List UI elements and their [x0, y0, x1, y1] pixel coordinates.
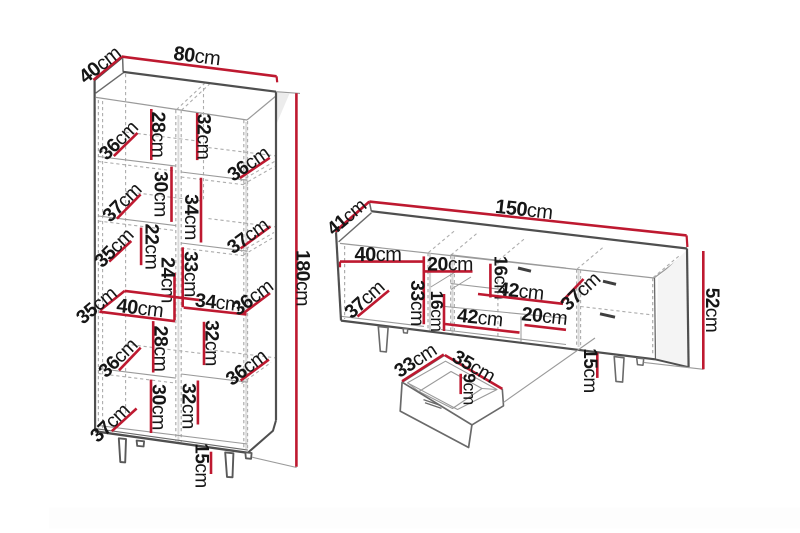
- svg-text:33cm: 33cm: [406, 280, 428, 326]
- svg-text:20cm: 20cm: [427, 254, 473, 276]
- svg-text:40cm: 40cm: [355, 244, 402, 266]
- svg-text:30cm: 30cm: [149, 171, 171, 217]
- svg-text:16cm: 16cm: [427, 291, 447, 332]
- svg-text:15cm: 15cm: [191, 443, 212, 487]
- svg-text:180cm: 180cm: [292, 250, 314, 306]
- svg-text:30cm: 30cm: [148, 384, 170, 430]
- svg-text:32cm: 32cm: [178, 383, 200, 429]
- svg-text:9cm: 9cm: [460, 373, 480, 405]
- svg-text:52cm: 52cm: [701, 288, 722, 332]
- svg-text:34cm: 34cm: [180, 194, 202, 240]
- svg-text:32cm: 32cm: [201, 320, 223, 366]
- svg-text:28cm: 28cm: [147, 112, 169, 158]
- svg-text:28cm: 28cm: [149, 326, 171, 372]
- svg-text:15cm: 15cm: [579, 348, 600, 392]
- svg-text:32cm: 32cm: [193, 114, 215, 160]
